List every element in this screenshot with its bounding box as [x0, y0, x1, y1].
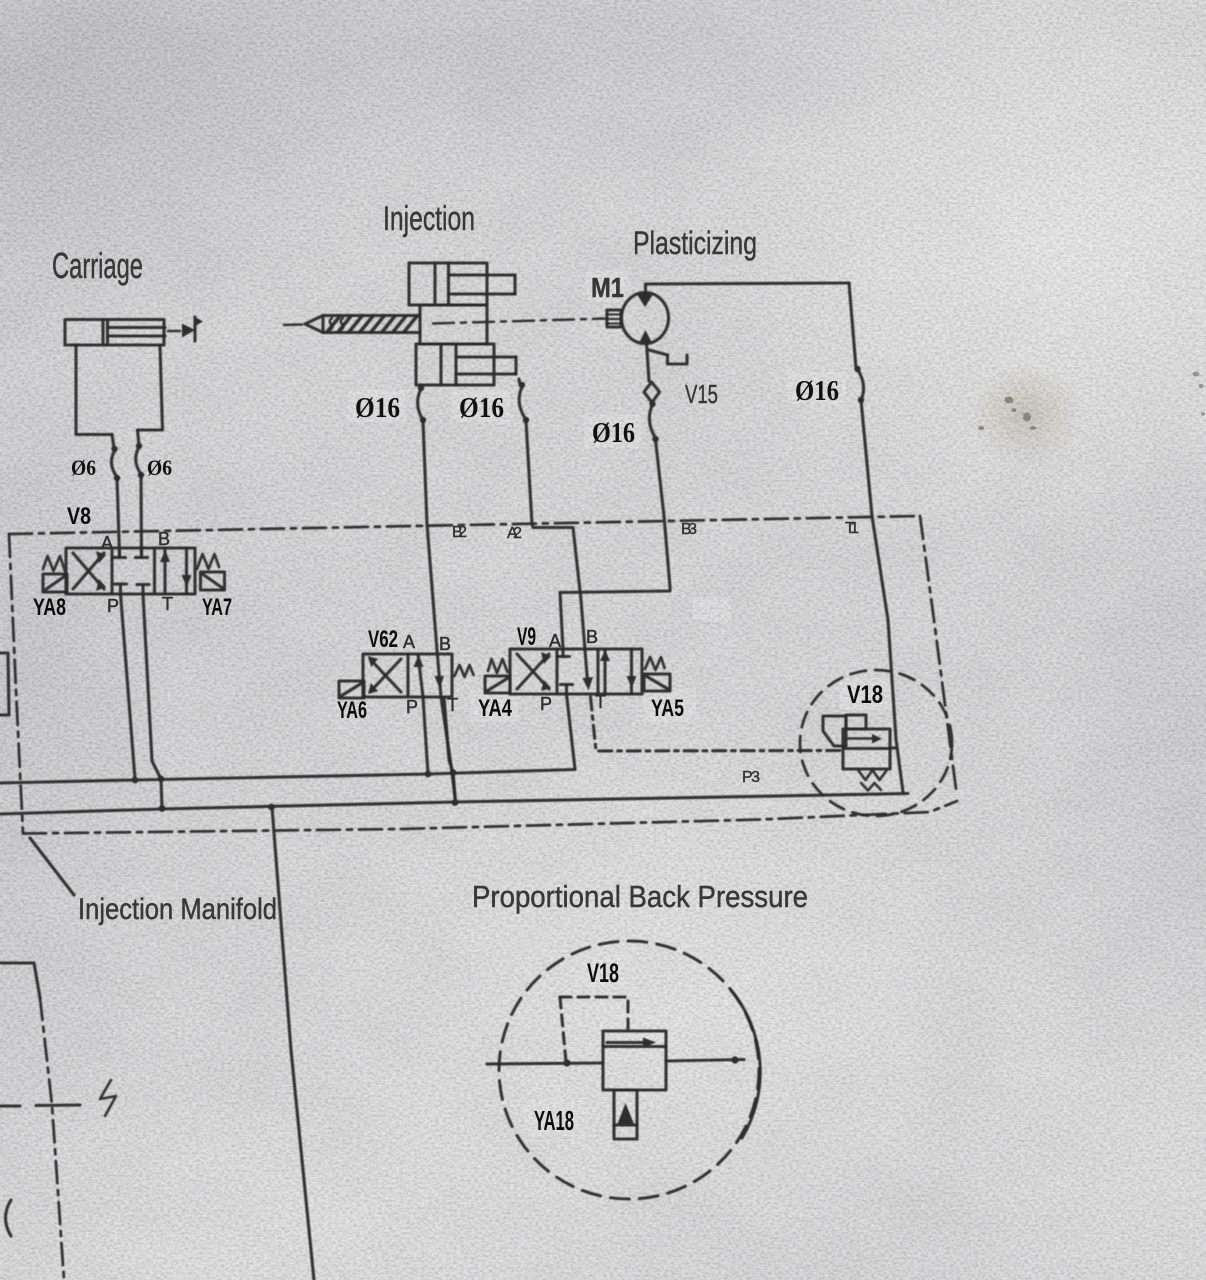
svg-text:Ø16: Ø16: [459, 393, 504, 424]
svg-text:A: A: [403, 632, 415, 652]
svg-text:Ø16: Ø16: [592, 418, 635, 449]
svg-text:V18: V18: [847, 681, 883, 709]
svg-text:Proportional Back Pressure: Proportional Back Pressure: [472, 879, 808, 914]
svg-text:YA8: YA8: [33, 594, 66, 621]
svg-text:P: P: [406, 697, 418, 717]
svg-text:T: T: [162, 594, 173, 614]
svg-text:YA5: YA5: [651, 695, 684, 722]
svg-text:T1: T1: [845, 520, 859, 537]
svg-text:A: A: [101, 533, 113, 553]
svg-text:Ø6: Ø6: [71, 455, 96, 480]
svg-text:B: B: [439, 634, 451, 654]
svg-text:YA7: YA7: [202, 594, 232, 621]
svg-text:B: B: [586, 627, 598, 647]
svg-text:B3: B3: [681, 521, 697, 538]
svg-text:Injection Manifold: Injection Manifold: [78, 893, 277, 926]
svg-text:YA6: YA6: [337, 697, 367, 724]
svg-text:T: T: [447, 695, 458, 715]
svg-text:P3: P3: [742, 769, 760, 786]
svg-text:V62: V62: [368, 626, 398, 653]
svg-text:V9: V9: [517, 623, 536, 651]
svg-text:Plasticizing: Plasticizing: [633, 225, 757, 261]
svg-text:Carriage: Carriage: [52, 245, 143, 286]
svg-text:A2: A2: [507, 525, 522, 542]
svg-text:P: P: [107, 596, 119, 616]
svg-text:YA18: YA18: [534, 1105, 574, 1136]
svg-text:V8: V8: [67, 503, 91, 530]
svg-text:Ø16: Ø16: [355, 393, 400, 424]
svg-text:Ø16: Ø16: [795, 376, 839, 407]
svg-text:B: B: [158, 529, 170, 549]
svg-text:P: P: [540, 694, 552, 714]
svg-text:Ø6: Ø6: [147, 455, 172, 480]
svg-text:A: A: [549, 631, 561, 651]
svg-text:V18: V18: [587, 958, 619, 988]
svg-text:YA4: YA4: [478, 695, 512, 722]
svg-text:M1: M1: [591, 272, 624, 303]
svg-text:Injection: Injection: [383, 200, 475, 238]
svg-text:B2: B2: [452, 524, 467, 541]
svg-text:V15: V15: [685, 379, 718, 409]
svg-text:T: T: [595, 692, 606, 712]
